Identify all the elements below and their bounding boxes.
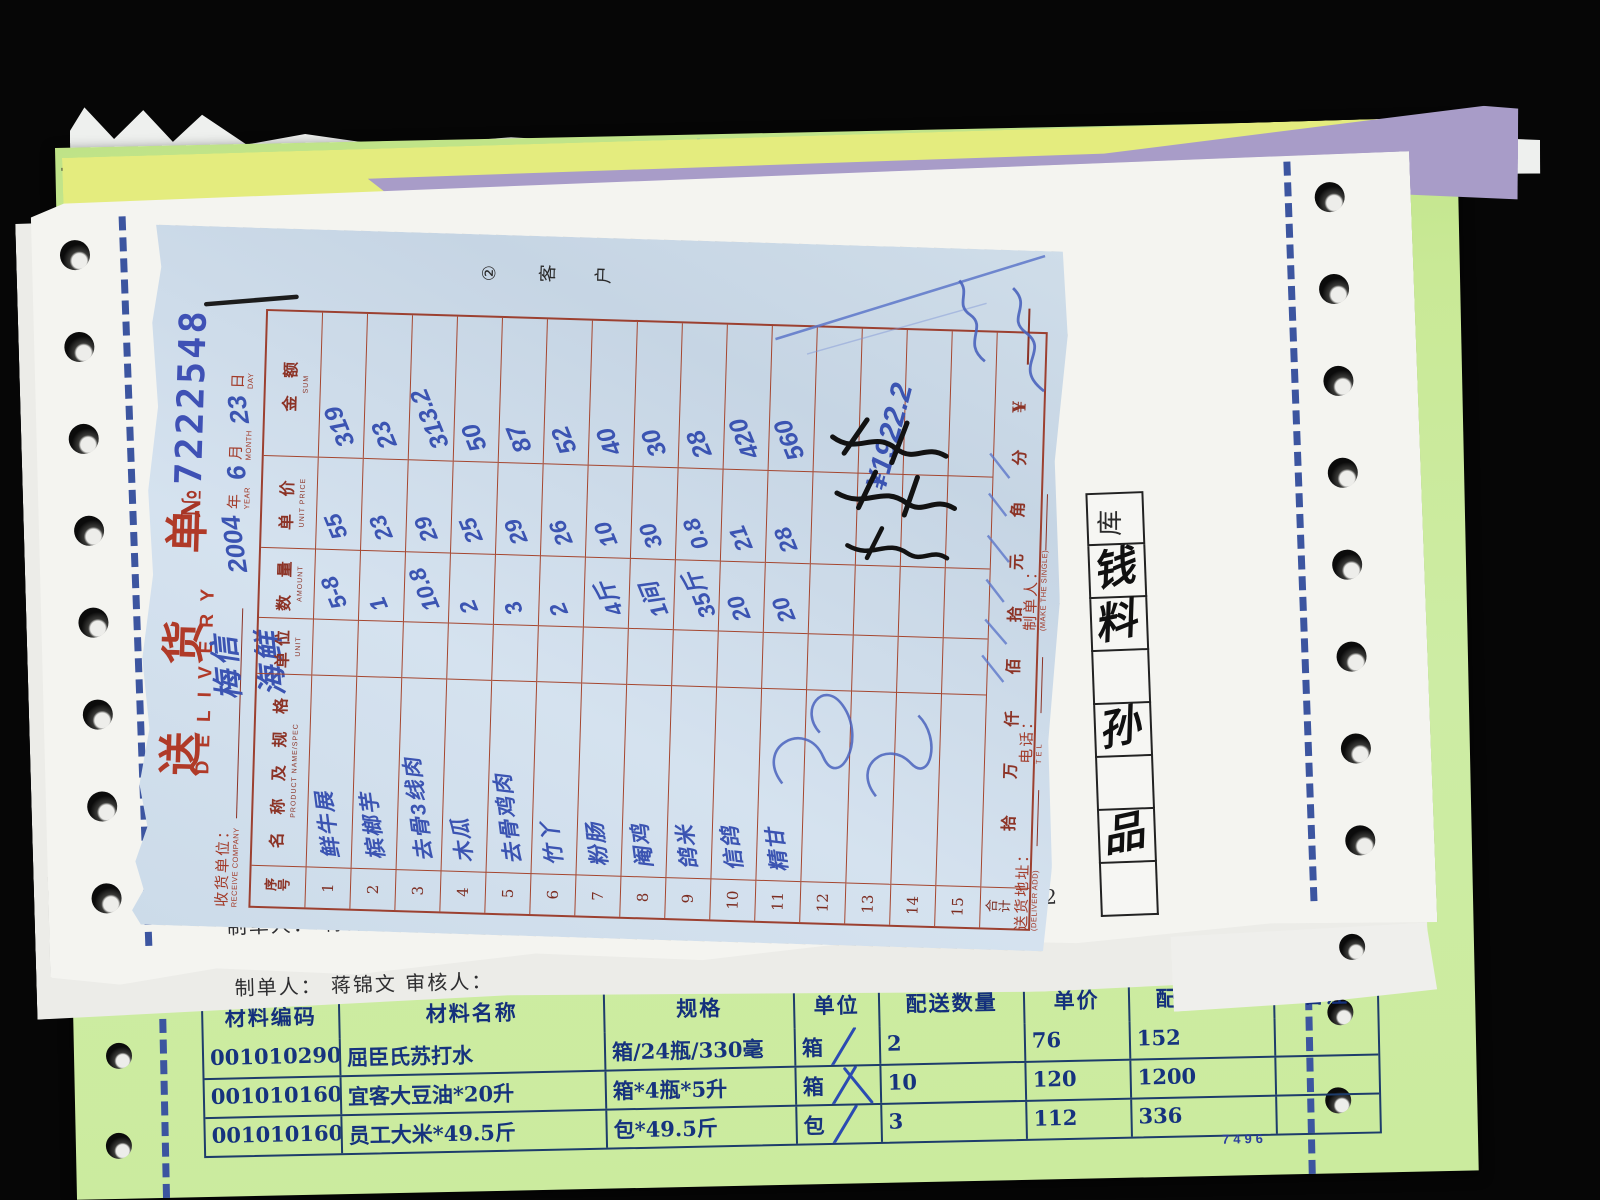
store-cell: 120 bbox=[1024, 1061, 1130, 1100]
item-no-cell: 12 bbox=[800, 882, 845, 923]
store-cell: 箱*4瓶*5升 bbox=[604, 1068, 795, 1109]
item-price-cell: 23 bbox=[361, 459, 408, 552]
item-name-cell: 精甘 bbox=[756, 689, 806, 882]
black-ink-character: 料 bbox=[1090, 594, 1141, 650]
store-cell: 152 bbox=[1129, 1019, 1275, 1059]
amount-word: 拾 bbox=[995, 815, 1019, 832]
warehouse-box: 孙 bbox=[1093, 703, 1153, 758]
item-name-cell bbox=[891, 693, 941, 886]
item-amount-cell bbox=[944, 568, 990, 639]
item-name-cell bbox=[801, 690, 851, 883]
copy-tag-customer: ② 客 户 bbox=[479, 260, 628, 290]
no-prefix: № bbox=[177, 489, 208, 518]
item-unit-cell bbox=[447, 624, 493, 681]
items-header-cell: 单位UNIT bbox=[257, 618, 313, 676]
warehouse-box: 库 bbox=[1085, 491, 1145, 546]
items-header-cell: 单 价UNIT PRICE bbox=[261, 456, 318, 550]
item-unit-cell bbox=[717, 632, 763, 689]
black-ink-character: 钱 bbox=[1088, 541, 1139, 597]
handwritten-slash bbox=[830, 1027, 856, 1066]
store-cell: 1200 bbox=[1129, 1058, 1275, 1098]
sprocket-hole bbox=[91, 883, 122, 914]
black-ink-character: 品 bbox=[1097, 806, 1148, 862]
item-amount-cell: 10.8 bbox=[404, 552, 450, 623]
delivery-items-table: 序号名 称 及 规 格PRODUCT NAME/SPEC单位UNIT数 量AMO… bbox=[248, 309, 1047, 931]
handwritten-slash bbox=[843, 1067, 874, 1105]
item-price-cell bbox=[856, 474, 903, 567]
day-label: 日DAY bbox=[231, 371, 255, 389]
store-cell: 屈臣氏苏打水 bbox=[339, 1033, 605, 1076]
store-cell: 112 bbox=[1025, 1100, 1131, 1139]
warehouse-label: 库 bbox=[1090, 510, 1127, 536]
item-name-cell bbox=[936, 694, 986, 887]
item-sum-cell: 23 bbox=[364, 314, 412, 460]
item-amount-cell: 35斤 bbox=[674, 560, 720, 631]
sprocket-hole bbox=[87, 791, 118, 822]
item-sum-cell: 313.2 bbox=[409, 315, 457, 461]
perforation-dashed-line bbox=[1283, 161, 1317, 901]
handwritten-year: 2004 bbox=[215, 513, 254, 575]
store-cell bbox=[1275, 1094, 1380, 1133]
item-amount-cell: 20 bbox=[764, 563, 810, 634]
sprocket-hole bbox=[106, 1133, 133, 1160]
form-serial-number: 7496 bbox=[1222, 1131, 1267, 1147]
store-cell: 箱 bbox=[794, 1027, 880, 1066]
item-unit-cell bbox=[582, 628, 628, 685]
item-unit-cell bbox=[627, 629, 673, 686]
items-header-cell: 金 额SUM bbox=[264, 311, 322, 458]
item-unit-cell bbox=[312, 620, 358, 677]
item-sum-cell: 50 bbox=[454, 317, 502, 463]
item-price-cell: 25 bbox=[451, 462, 498, 555]
store-cell bbox=[1274, 1055, 1379, 1094]
item-amount-cell: 1间 bbox=[629, 559, 675, 630]
item-sum-cell: 420 bbox=[724, 325, 772, 471]
item-sum-cell: 560 bbox=[769, 326, 817, 472]
item-name-cell: 鸽米 bbox=[666, 686, 716, 879]
warehouse-box bbox=[1091, 650, 1151, 705]
items-header-cell: 名 称 及 规 格PRODUCT NAME/SPEC bbox=[252, 674, 312, 868]
store-cell: 00101029017 bbox=[204, 1038, 340, 1078]
sprocket-hole bbox=[1340, 733, 1371, 764]
sprocket-hole bbox=[1323, 365, 1354, 396]
item-price-cell: 28 bbox=[766, 471, 813, 564]
item-sum-cell bbox=[903, 330, 951, 476]
black-ink-character: 孙 bbox=[1093, 700, 1144, 756]
sprocket-hole bbox=[1336, 641, 1367, 672]
telephone-label: 电话：T E L bbox=[1019, 657, 1046, 765]
sprocket-hole bbox=[1327, 457, 1358, 488]
item-amount-cell: 2 bbox=[449, 554, 495, 625]
store-cell: 包*49.5斤 bbox=[605, 1107, 796, 1148]
item-sum-cell: 319 bbox=[319, 313, 367, 459]
item-name-cell: 槟榔芋 bbox=[352, 677, 402, 870]
item-name-cell: 去骨鸡肉 bbox=[487, 681, 537, 874]
delivery-note-blue-copy: 送 货 单 DELIVERY № 7222548 收货单位： RECEIVE C… bbox=[130, 225, 1070, 952]
item-unit-cell bbox=[357, 621, 403, 678]
currency-line bbox=[1013, 308, 1031, 364]
item-no-cell: 4 bbox=[440, 871, 485, 912]
item-price-cell: 30 bbox=[631, 467, 678, 560]
item-sum-cell: 28 bbox=[679, 323, 727, 469]
item-no-cell: 13 bbox=[845, 883, 890, 924]
item-amount-cell: 20 bbox=[719, 562, 765, 633]
item-amount-cell: 2 bbox=[539, 556, 585, 627]
store-cell: 包 bbox=[795, 1105, 881, 1144]
sprocket-hole bbox=[1345, 825, 1376, 856]
item-amount-cell bbox=[809, 564, 855, 635]
store-cell: 箱/24瓶/330毫 bbox=[604, 1029, 795, 1070]
receive-company-label: 收货单位： RECEIVE COMPANY bbox=[214, 822, 240, 908]
item-no-cell: 14 bbox=[890, 885, 935, 926]
item-unit-cell bbox=[672, 630, 718, 687]
deliver-address-label: 送货地址：(DELIVER ADD) bbox=[1014, 789, 1042, 931]
serial-number: № 7222548 bbox=[166, 308, 215, 519]
warehouse-box: 料 bbox=[1089, 597, 1149, 652]
warehouse-box: 品 bbox=[1097, 809, 1157, 864]
item-sum-cell: 40 bbox=[589, 321, 637, 467]
store-cell: 00101016086 bbox=[205, 1077, 341, 1117]
item-name-cell: 去骨3线肉 bbox=[397, 678, 447, 871]
item-no-cell: 6 bbox=[530, 874, 575, 915]
warehouse-box bbox=[1099, 862, 1159, 917]
amount-word: 角 bbox=[1004, 501, 1028, 518]
item-name-cell: 阉鸡 bbox=[621, 685, 671, 878]
item-unit-cell bbox=[852, 636, 898, 693]
item-price-cell: 10 bbox=[586, 466, 633, 559]
warehouse-box-column: 库钱料孙品 bbox=[1085, 491, 1158, 917]
year-label: 年YEAR bbox=[228, 486, 252, 509]
item-amount-cell: 3 bbox=[494, 555, 540, 626]
item-no-cell: 10 bbox=[710, 879, 755, 920]
item-no-cell: 9 bbox=[665, 878, 710, 919]
sprocket-hole bbox=[73, 515, 104, 546]
items-header-cell: 序号 bbox=[250, 866, 305, 908]
item-name-cell bbox=[846, 692, 896, 885]
amount-word: 佰 bbox=[1000, 658, 1024, 675]
item-amount-cell bbox=[854, 566, 900, 637]
item-sum-cell bbox=[859, 329, 907, 475]
sprocket-hole bbox=[69, 423, 100, 454]
month-label: 月MONTH bbox=[229, 430, 254, 461]
handwritten-slash bbox=[832, 1105, 858, 1144]
item-price-cell: 26 bbox=[541, 464, 588, 557]
item-sum-cell bbox=[948, 331, 996, 477]
item-unit-cell bbox=[807, 634, 853, 691]
item-name-cell: 粉肠 bbox=[576, 684, 626, 877]
items-header-cell: 数 量AMOUNT bbox=[259, 548, 315, 620]
item-unit-cell bbox=[762, 633, 808, 690]
item-price-cell: 29 bbox=[496, 463, 543, 556]
item-price-cell bbox=[901, 475, 948, 568]
sprocket-hole bbox=[59, 240, 90, 271]
item-name-cell: 鲜牛展 bbox=[307, 676, 357, 869]
item-price-cell bbox=[811, 472, 858, 565]
store-cell: 3 bbox=[880, 1102, 1026, 1142]
item-amount-cell: 4斤 bbox=[584, 558, 630, 629]
store-cell: 宜客大豆油*20升 bbox=[340, 1072, 606, 1115]
item-amount-cell: 1 bbox=[359, 551, 405, 622]
item-no-cell: 5 bbox=[485, 873, 530, 914]
store-cell: 76 bbox=[1024, 1022, 1130, 1061]
handwritten-day: 23 bbox=[221, 393, 256, 426]
item-amount-cell bbox=[899, 567, 945, 638]
item-no-cell: 15 bbox=[935, 886, 980, 927]
store-cell bbox=[1274, 1016, 1379, 1055]
sprocket-hole bbox=[106, 1043, 133, 1070]
item-sum-cell: 30 bbox=[634, 322, 682, 468]
item-price-cell: 21 bbox=[721, 470, 768, 563]
item-amount-cell: 5-8 bbox=[314, 550, 360, 621]
item-no-cell: 2 bbox=[350, 869, 395, 910]
no-digits: 7222548 bbox=[167, 308, 215, 486]
item-sum-cell bbox=[814, 327, 862, 473]
warehouse-box bbox=[1095, 756, 1155, 811]
sprocket-hole bbox=[78, 607, 109, 638]
item-price-cell bbox=[946, 476, 993, 569]
receive-company-line: 梅信海鲜 bbox=[220, 608, 243, 818]
item-sum-cell: 52 bbox=[544, 319, 592, 465]
sprocket-hole bbox=[1319, 273, 1350, 304]
currency-symbol: ¥ bbox=[1009, 400, 1030, 413]
item-name-cell: 竹丫 bbox=[531, 682, 581, 875]
photo-of-paper-stack: 门店配送单 材料编码材料名称规格单位配送数量单价配送金额备注 001010290… bbox=[0, 0, 1600, 1200]
item-unit-cell bbox=[942, 638, 988, 695]
sprocket-hole bbox=[1339, 933, 1366, 960]
item-no-cell: 7 bbox=[575, 875, 620, 916]
item-name-cell: 信鸽 bbox=[711, 688, 761, 881]
store-cell: 员工大米*49.5斤 bbox=[340, 1111, 606, 1154]
item-sum-cell: 87 bbox=[499, 318, 547, 464]
item-no-cell: 8 bbox=[620, 877, 665, 918]
maker-label: 制单人：(MAKE THE SINGLE) bbox=[1023, 493, 1051, 631]
store-cell: 10 bbox=[879, 1063, 1025, 1103]
item-no-cell: 1 bbox=[305, 867, 350, 908]
item-unit-cell bbox=[492, 625, 538, 682]
item-no-cell: 11 bbox=[755, 881, 800, 922]
item-price-cell: 29 bbox=[406, 460, 453, 553]
item-unit-cell bbox=[897, 637, 943, 694]
item-name-cell: 木瓜 bbox=[442, 680, 492, 873]
sprocket-hole bbox=[1314, 182, 1345, 213]
amount-word: 万 bbox=[997, 763, 1021, 780]
sprocket-hole bbox=[82, 699, 113, 730]
warehouse-box: 钱 bbox=[1087, 544, 1147, 599]
item-unit-cell bbox=[402, 622, 448, 679]
amount-word: 分 bbox=[1006, 449, 1030, 466]
item-unit-cell bbox=[537, 626, 583, 683]
item-price-cell: 0.8 bbox=[676, 468, 723, 561]
store-cell: 箱 bbox=[794, 1066, 880, 1105]
item-no-cell: 3 bbox=[395, 870, 440, 911]
item-price-cell: 55 bbox=[316, 458, 363, 551]
sprocket-hole bbox=[1332, 549, 1363, 580]
sprocket-hole bbox=[64, 331, 95, 362]
handwritten-month: 6 bbox=[220, 464, 253, 483]
store-cell: 2 bbox=[879, 1024, 1025, 1064]
store-cell: 00101016097 bbox=[205, 1116, 341, 1156]
